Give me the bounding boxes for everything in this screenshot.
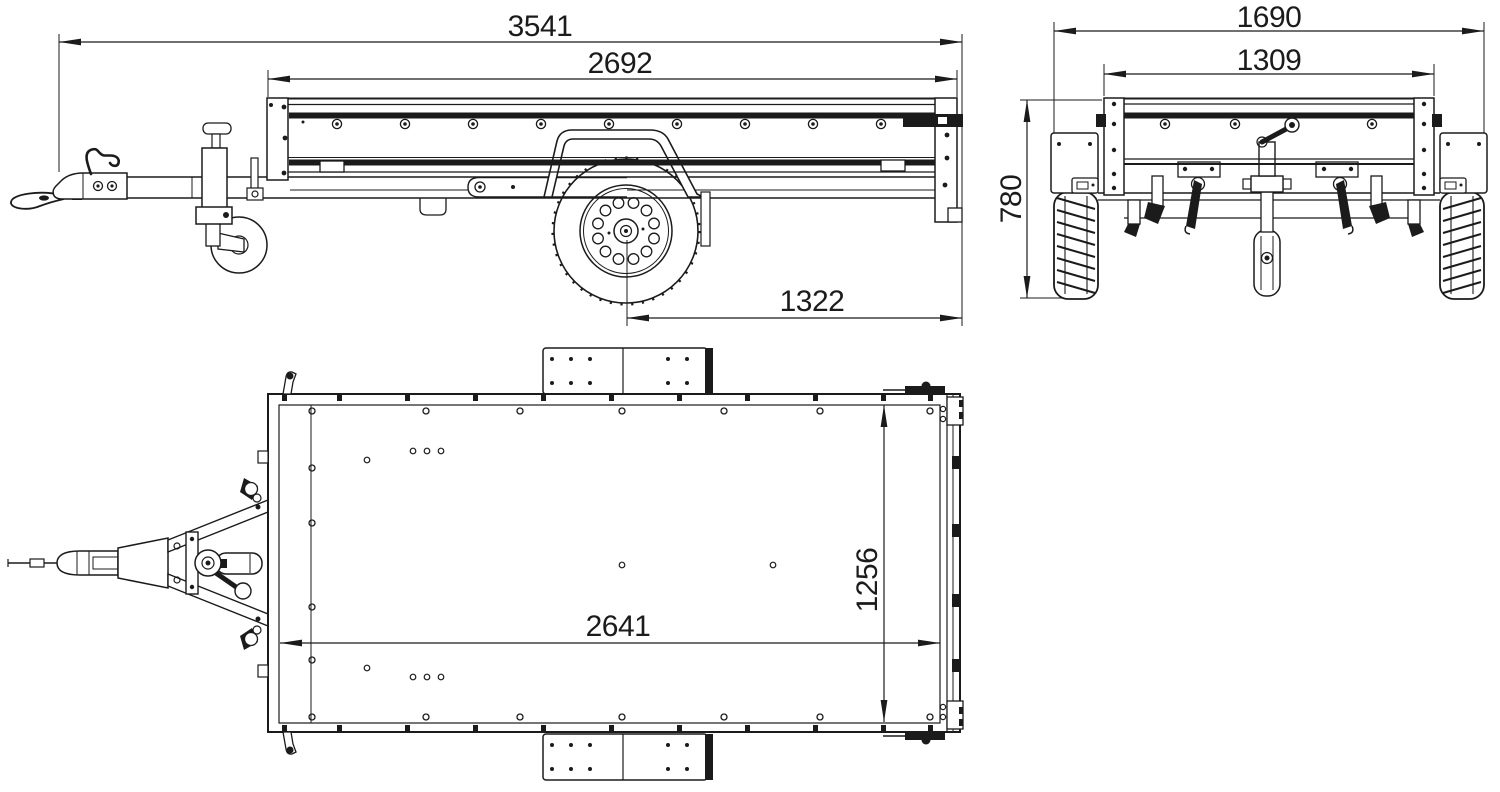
mudguard-bottom: [543, 734, 713, 780]
dimension-overall-width: 1690: [1054, 1, 1484, 34]
left-edge-latch-bottom: [240, 626, 268, 677]
side-view: 3541 2692 1322: [11, 10, 963, 326]
trailer-technical-drawing: 3541 2692 1322: [0, 0, 1500, 792]
panel-bolt-row: [1160, 119, 1376, 128]
sideboard-latch-left: [1178, 162, 1220, 234]
aframe-beam-lower: [168, 574, 268, 626]
rear-latch-bar: [903, 114, 963, 127]
dim-label-overall-length: 3541: [508, 10, 573, 43]
handbrake-lever: [87, 149, 119, 174]
dim-label-box-length: 2692: [588, 47, 653, 80]
hitch-coupling: [53, 173, 127, 199]
front-view: 1690 1309 780: [995, 1, 1487, 299]
post-marker-left: [1096, 114, 1106, 127]
dimension-box-length: 2692: [268, 47, 957, 80]
corner-post-right: [1414, 98, 1434, 195]
mudguard-right: [1440, 133, 1487, 193]
corner-lever-top-left: [283, 372, 296, 394]
top-rail: [1124, 113, 1415, 119]
dimension-overall-length: 3541: [59, 10, 962, 43]
corner-post-left: [1104, 98, 1124, 195]
side-marker-front: [320, 161, 344, 172]
dimension-body-height: 780: [995, 100, 1028, 298]
dim-label-overall-width: 1690: [1237, 1, 1302, 34]
aframe-beam-upper: [168, 500, 268, 552]
side-marker-rear: [881, 160, 905, 171]
panel-bolt-row: [302, 119, 886, 128]
bottom-rail: [289, 160, 935, 166]
wheel-left: [1054, 192, 1098, 299]
hitch-coupling-top: [57, 551, 118, 575]
side-box-body: [267, 98, 963, 222]
front-corner-latch: [247, 158, 263, 200]
dimension-axle-to-rear: 1322: [627, 285, 962, 318]
dim-label-box-width: 1309: [1237, 44, 1302, 77]
dim-label-axle-to-rear: 1322: [780, 285, 845, 318]
mudflap: [701, 192, 710, 246]
mudguard-left: [1051, 133, 1098, 193]
jockey-handle: [203, 123, 231, 134]
drawbar-top: [8, 500, 268, 626]
drawing-sheet: 3541 2692 1322: [0, 0, 1500, 792]
mudguard-top: [543, 348, 713, 394]
wheel-right: [1440, 192, 1484, 299]
dimension-box-width: 1309: [1104, 44, 1434, 77]
dim-label-inner-width: 1256: [851, 548, 884, 613]
sideboard-latch-right: [1316, 162, 1358, 234]
dim-label-inner-length: 2641: [586, 610, 651, 643]
top-rail: [289, 113, 935, 119]
top-view: 2641 1256: [8, 348, 963, 780]
post-marker-right: [1432, 114, 1442, 127]
left-edge-latch-top: [240, 451, 268, 502]
dim-label-body-height: 780: [995, 175, 1028, 224]
rear-lamp: [948, 208, 962, 222]
jockey-post: [202, 148, 227, 210]
suspension-bracket: [420, 198, 446, 215]
corner-lever-bottom-left: [283, 732, 296, 754]
jockey-wheel-front: [1243, 118, 1299, 296]
